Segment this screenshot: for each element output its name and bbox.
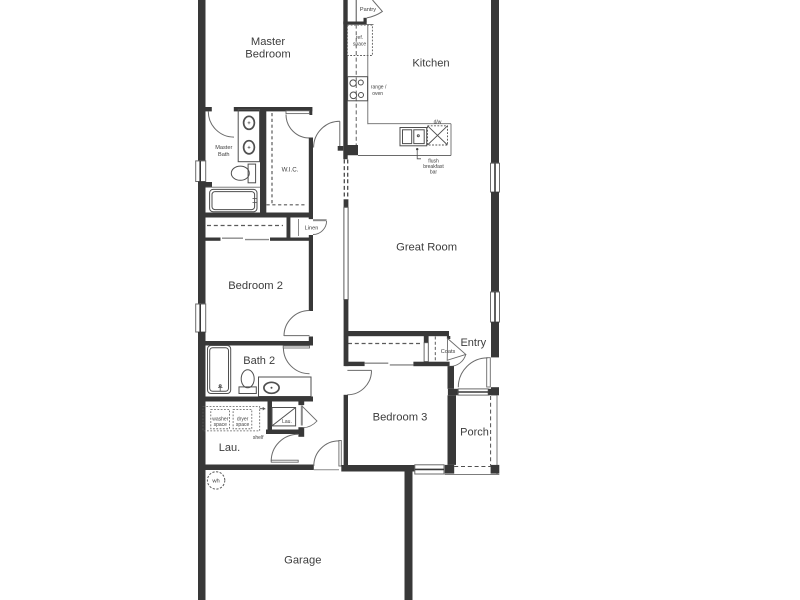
svg-text:oven: oven: [372, 91, 383, 97]
svg-text:Master: Master: [251, 36, 285, 48]
svg-text:d/w: d/w: [434, 119, 442, 125]
svg-text:Porch: Porch: [460, 426, 489, 438]
svg-text:Kitchen: Kitchen: [412, 58, 449, 70]
svg-text:Lau.: Lau.: [219, 442, 240, 454]
svg-text:Entry: Entry: [460, 337, 486, 349]
svg-text:space: space: [236, 422, 250, 428]
svg-text:Garage: Garage: [284, 554, 321, 566]
svg-text:Coats: Coats: [441, 349, 456, 355]
svg-text:Bath: Bath: [218, 152, 230, 158]
svg-text:bar: bar: [430, 170, 438, 176]
svg-text:Bedroom 3: Bedroom 3: [373, 412, 428, 424]
svg-text:range /: range /: [371, 84, 387, 90]
svg-text:Linen: Linen: [305, 226, 319, 232]
svg-text:wh: wh: [211, 479, 219, 485]
svg-text:Master: Master: [215, 145, 232, 151]
svg-text:Lau.: Lau.: [282, 419, 292, 425]
svg-text:Bedroom 2: Bedroom 2: [228, 280, 283, 292]
svg-text:Bath 2: Bath 2: [243, 355, 275, 367]
svg-text:Bedroom: Bedroom: [245, 49, 290, 61]
svg-text:W.I.C.: W.I.C.: [282, 166, 299, 173]
svg-text:space: space: [353, 42, 367, 48]
svg-text:Great Room: Great Room: [396, 242, 457, 254]
svg-text:shelf: shelf: [253, 435, 264, 441]
svg-text:Pantry: Pantry: [360, 7, 376, 13]
svg-text:ref.: ref.: [356, 35, 363, 41]
svg-text:space: space: [214, 422, 228, 428]
